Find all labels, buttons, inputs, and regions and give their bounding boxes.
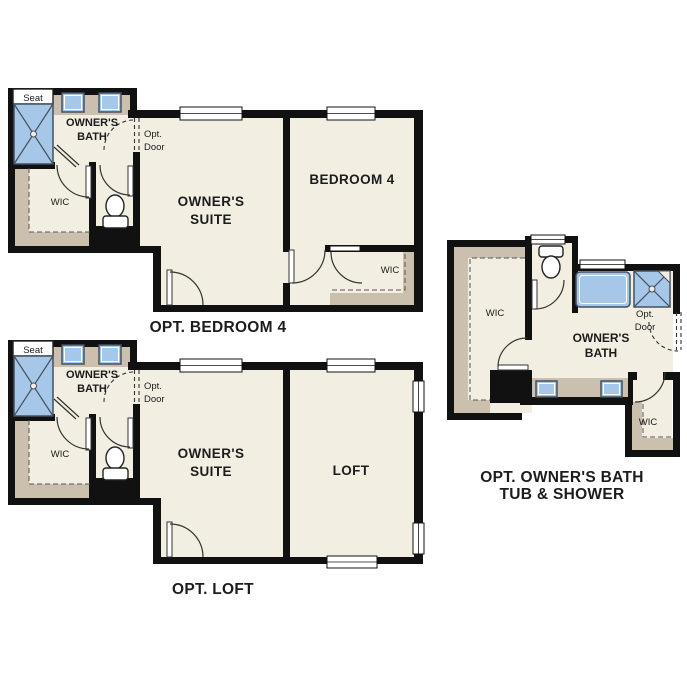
- shower: [634, 271, 670, 307]
- door-leaf: [167, 270, 172, 305]
- toilet-bowl: [106, 447, 124, 469]
- opt-door-label: Door: [144, 142, 165, 153]
- wall: [673, 372, 680, 457]
- loft-label: LOFT: [333, 463, 370, 478]
- wall: [133, 152, 140, 232]
- wic-shelving: [454, 247, 468, 413]
- plan-caption: OPT. OWNER'S BATH: [480, 469, 644, 486]
- toilet-tank: [103, 468, 128, 480]
- wic-shelving: [14, 232, 90, 246]
- wall: [283, 110, 290, 252]
- owners-suite-label: OWNER'S: [178, 446, 245, 461]
- wall: [414, 110, 423, 312]
- door-leaf: [86, 418, 91, 450]
- toilet-bowl: [106, 195, 124, 217]
- wic-label: WIC: [486, 308, 505, 319]
- opt-door-label: Opt.: [144, 129, 162, 140]
- seat-label: Seat: [23, 93, 43, 104]
- door-leaf: [128, 166, 133, 196]
- plan-opt-owners-bath: Opt. Door WIC OWNER'S BATH WIC OPT. OWNE…: [447, 235, 681, 503]
- owners-bath-label: BATH: [585, 346, 617, 360]
- shower-drain: [31, 131, 37, 137]
- door-leaf: [86, 166, 91, 198]
- floorplan-page: Seat: [0, 0, 687, 687]
- wic-label: WIC: [639, 417, 658, 428]
- wall: [153, 498, 161, 564]
- bathtub: [576, 272, 630, 307]
- wic-shelving: [14, 484, 90, 498]
- plan-opt-bedroom-4: Seat: [8, 88, 423, 336]
- shower-drain: [31, 383, 37, 389]
- owners-bath-label: OWNER'S: [66, 117, 118, 129]
- toilet-bowl: [542, 256, 560, 278]
- owners-bath-label: BATH: [77, 131, 107, 143]
- door-leaf: [498, 365, 528, 370]
- owners-suite-label: SUITE: [190, 212, 232, 227]
- opt-door-label: Opt.: [636, 309, 654, 320]
- owners-suite-label: OWNER'S: [178, 194, 245, 209]
- plan-caption: OPT. BEDROOM 4: [150, 319, 287, 336]
- wall: [153, 246, 161, 312]
- wall: [525, 243, 532, 340]
- wall: [283, 283, 290, 312]
- bathtub: [576, 272, 630, 307]
- wall: [625, 402, 632, 457]
- door-leaf: [167, 522, 172, 557]
- bedroom4-label: BEDROOM 4: [309, 172, 394, 187]
- wall: [133, 404, 140, 484]
- wall: [8, 246, 161, 253]
- door-leaf: [289, 250, 294, 283]
- owners-suite-label: SUITE: [190, 464, 232, 479]
- wic-shelving: [454, 400, 490, 413]
- wall: [628, 372, 637, 380]
- opt-door-label: Opt.: [144, 381, 162, 392]
- wall: [447, 413, 522, 420]
- wall: [520, 397, 632, 405]
- wic-label: WIC: [51, 449, 70, 460]
- wall: [625, 450, 680, 457]
- wall: [447, 240, 454, 420]
- wall: [128, 110, 423, 118]
- plan-caption: OPT. LOFT: [172, 581, 254, 598]
- door-leaf: [128, 418, 133, 448]
- wall: [128, 362, 423, 370]
- wic-shelving: [632, 438, 676, 450]
- wall: [447, 240, 532, 247]
- wall: [283, 362, 290, 564]
- owners-bath-label: BATH: [77, 383, 107, 395]
- bedroom-wic-shelving: [330, 293, 415, 307]
- toilet-tank: [103, 216, 128, 228]
- owners-bath-label: OWNER'S: [573, 331, 630, 345]
- plan-opt-loft: Seat: [8, 340, 424, 598]
- opt-door-label: Door: [635, 322, 656, 333]
- wall: [628, 378, 633, 405]
- door-leaf: [532, 280, 537, 309]
- cased-opening: [330, 246, 360, 251]
- wic-label: WIC: [51, 197, 70, 208]
- plan-caption: TUB & SHOWER: [499, 486, 624, 503]
- wall: [673, 264, 680, 314]
- floorplan-canvas: Seat: [0, 0, 687, 687]
- opt-door-label: Door: [144, 394, 165, 405]
- seat-label: Seat: [23, 345, 43, 356]
- shower-drain: [649, 286, 655, 292]
- wall: [8, 498, 161, 505]
- bedroom-wic-label: WIC: [381, 265, 400, 276]
- bedroom4-floor: [285, 113, 421, 309]
- owners-bath-label: OWNER'S: [66, 369, 118, 381]
